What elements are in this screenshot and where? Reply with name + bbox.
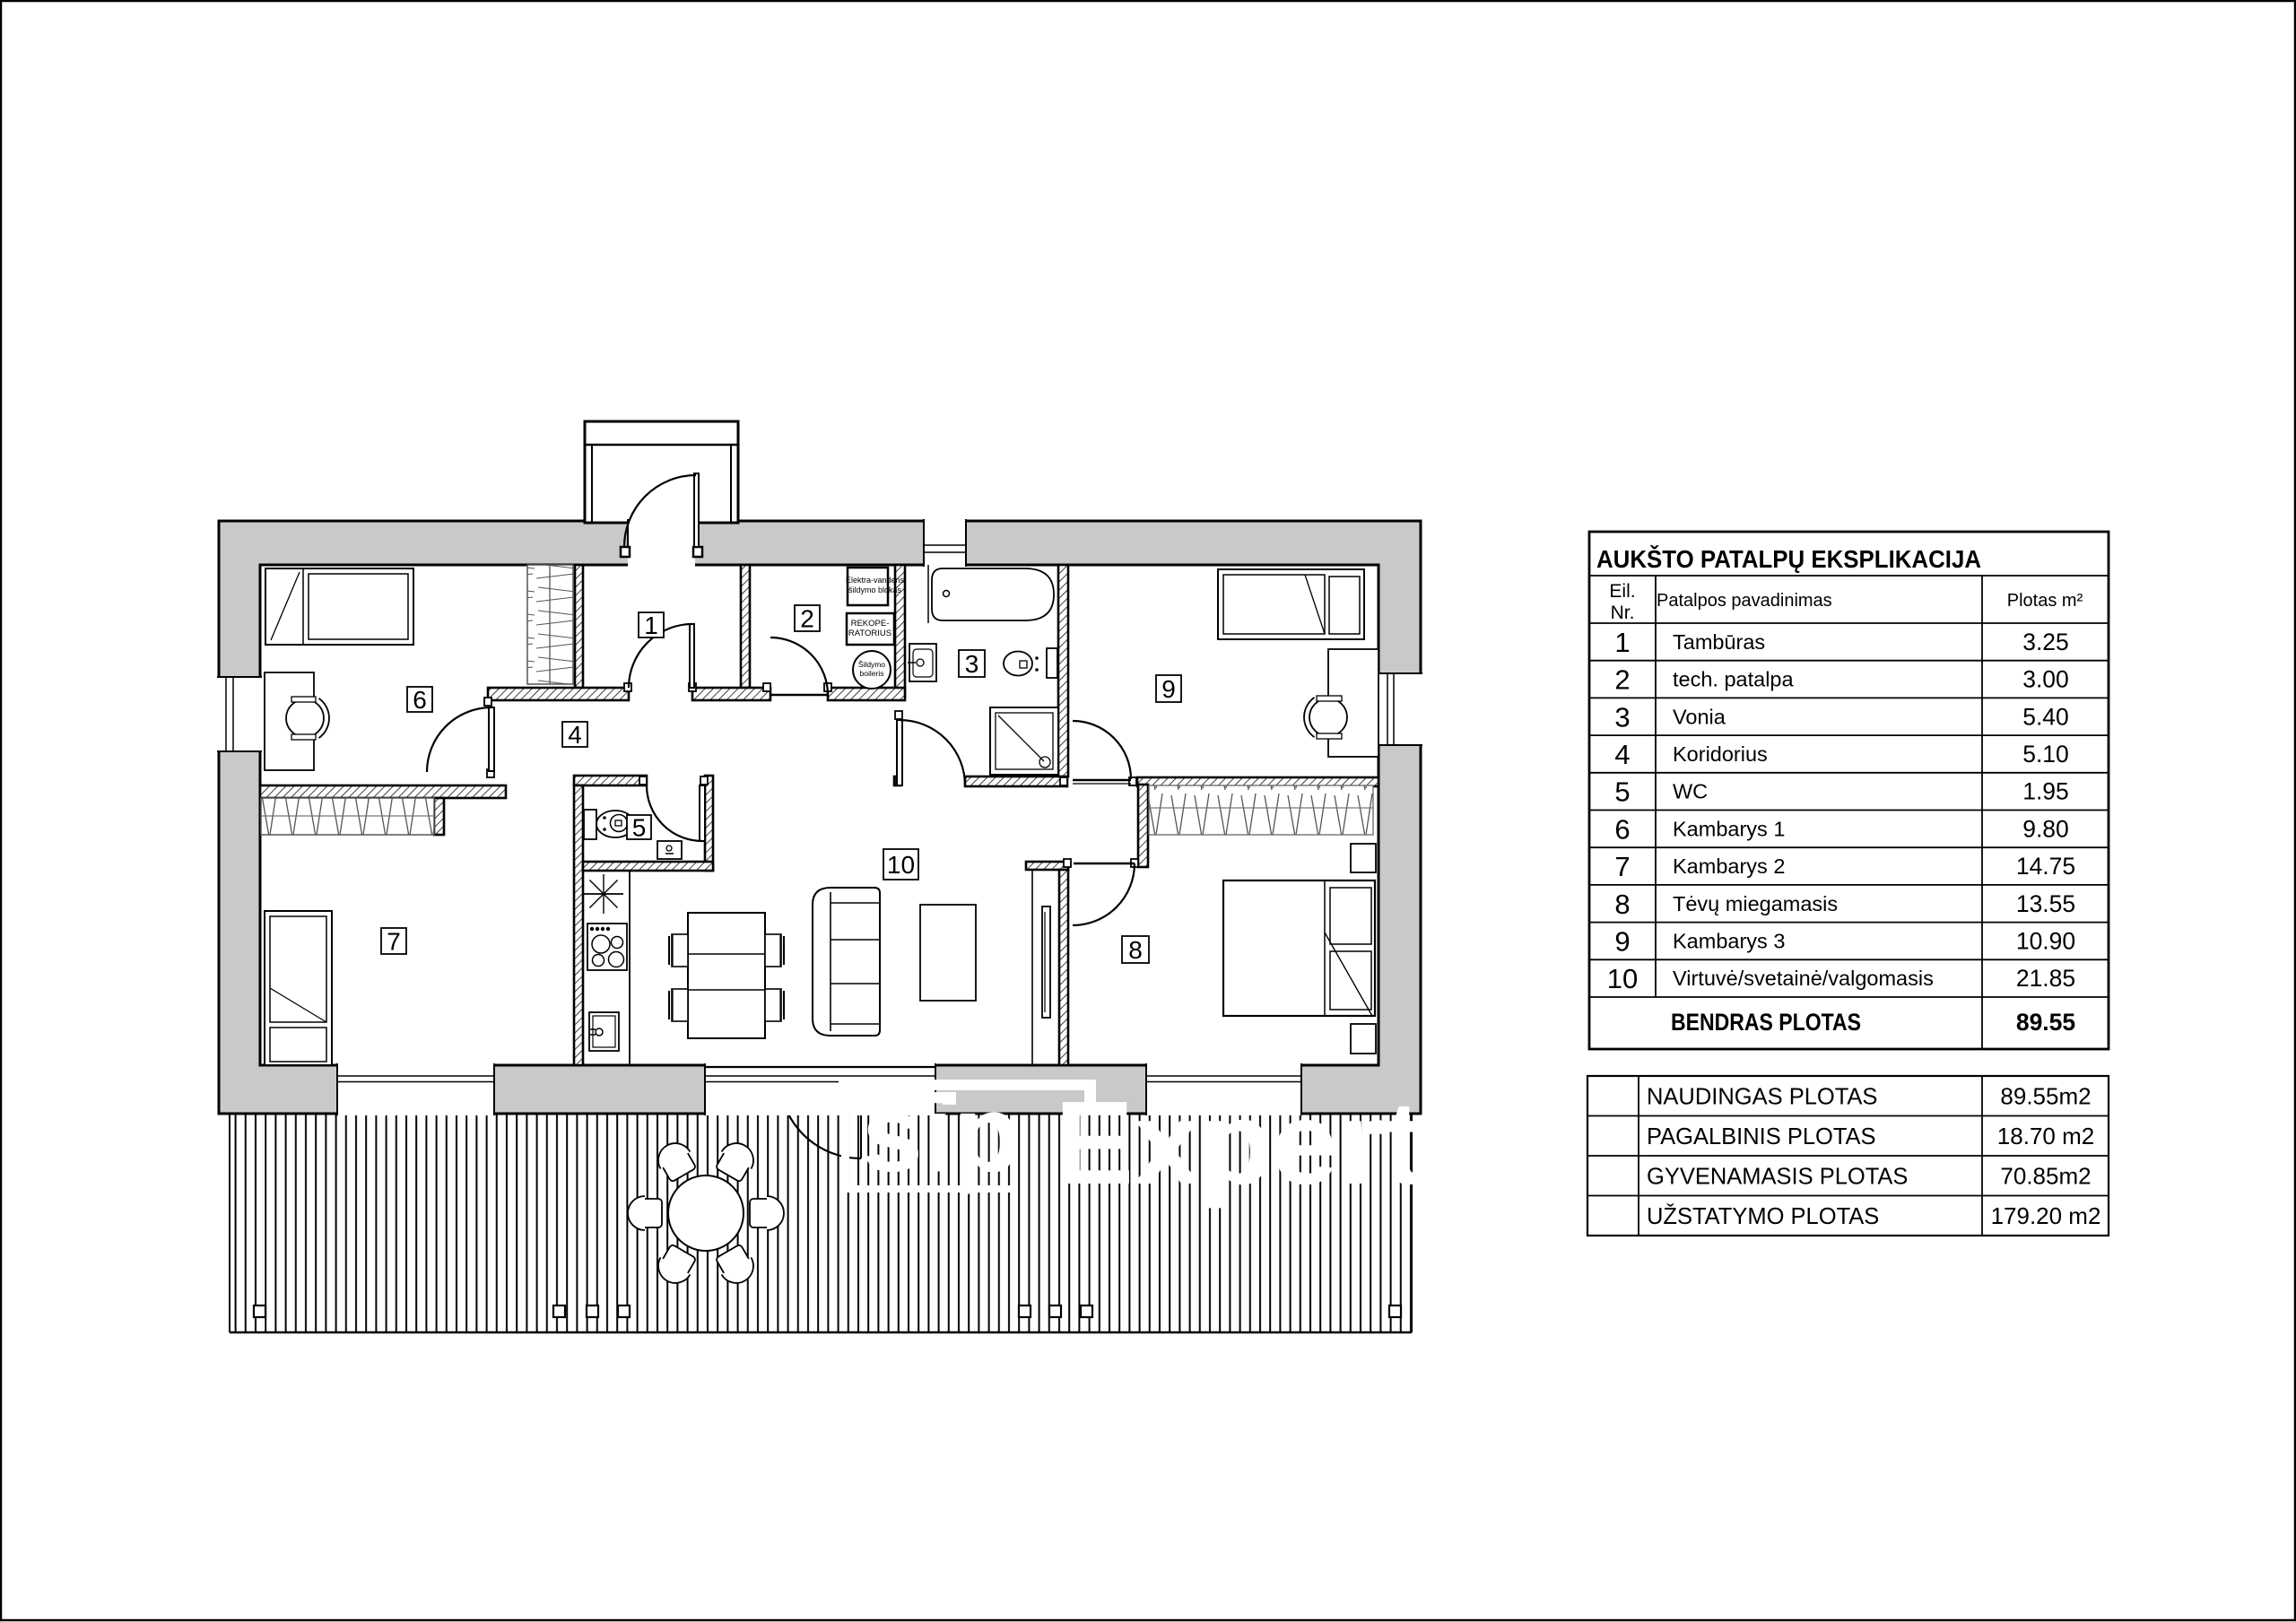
- svg-text:5.10: 5.10: [2022, 741, 2069, 768]
- svg-text:AUKŠTO PATALPŲ EKSPLIKACIJA: AUKŠTO PATALPŲ EKSPLIKACIJA: [1596, 544, 1981, 573]
- svg-text:4: 4: [568, 721, 582, 749]
- svg-text:BENDRAS PLOTAS: BENDRAS PLOTAS: [1671, 1009, 1861, 1036]
- svg-text:Koridorius: Koridorius: [1673, 742, 1768, 766]
- svg-text:9: 9: [1614, 925, 1630, 957]
- svg-text:Kambarys 2: Kambarys 2: [1673, 854, 1785, 878]
- svg-text:2: 2: [1614, 664, 1630, 696]
- svg-text:8: 8: [1128, 936, 1143, 964]
- svg-text:3.00: 3.00: [2022, 666, 2069, 693]
- svg-text:10: 10: [887, 851, 915, 879]
- svg-text:NAUDINGAS PLOTAS: NAUDINGAS PLOTAS: [1647, 1084, 1877, 1109]
- svg-text:UŽSTATYMO PLOTAS: UŽSTATYMO PLOTAS: [1647, 1203, 1879, 1229]
- svg-text:13.55: 13.55: [2016, 890, 2075, 917]
- svg-text:Patalpos pavadinimas: Patalpos pavadinimas: [1657, 591, 1832, 611]
- svg-text:6: 6: [1614, 813, 1630, 845]
- svg-text:8: 8: [1614, 889, 1630, 920]
- svg-text:Šildymo: Šildymo: [858, 660, 886, 669]
- svg-text:89.55: 89.55: [2016, 1009, 2075, 1036]
- svg-text:21.85: 21.85: [2016, 965, 2075, 992]
- svg-text:Kambarys 3: Kambarys 3: [1673, 929, 1785, 952]
- svg-text:9.80: 9.80: [2022, 815, 2069, 842]
- svg-text:REKOPE-: REKOPE-: [851, 619, 890, 629]
- svg-text:GYVENAMASIS PLOTAS: GYVENAMASIS PLOTAS: [1647, 1164, 1908, 1189]
- svg-text:tech. patalpa: tech. patalpa: [1673, 668, 1795, 691]
- svg-text:3: 3: [965, 650, 979, 678]
- svg-text:5: 5: [1614, 776, 1630, 808]
- svg-text:5.40: 5.40: [2022, 703, 2069, 730]
- svg-text:9: 9: [1161, 675, 1176, 703]
- svg-text:sip: sip: [862, 1072, 1020, 1194]
- svg-text:5: 5: [632, 814, 647, 842]
- svg-text:179.20 m2: 179.20 m2: [1991, 1202, 2101, 1229]
- svg-text:3: 3: [1614, 701, 1630, 733]
- svg-text:1: 1: [644, 612, 658, 639]
- svg-text:4: 4: [1614, 739, 1630, 770]
- svg-text:89.55m2: 89.55m2: [2000, 1082, 2091, 1109]
- svg-text:Expert: Expert: [1055, 1077, 1423, 1209]
- svg-text:10.90: 10.90: [2016, 927, 2075, 954]
- svg-text:RATORIUS: RATORIUS: [848, 629, 891, 638]
- svg-text:6: 6: [413, 686, 427, 714]
- svg-text:Eil.: Eil.: [1609, 581, 1635, 602]
- svg-text:PAGALBINIS PLOTAS: PAGALBINIS PLOTAS: [1647, 1124, 1876, 1149]
- svg-text:boileris: boileris: [860, 669, 884, 678]
- svg-text:Tėvų miegamasis: Tėvų miegamasis: [1673, 892, 1838, 915]
- svg-text:Virtuvė/svetainė/valgomasis: Virtuvė/svetainė/valgomasis: [1673, 967, 1934, 990]
- svg-text:2: 2: [800, 605, 814, 633]
- svg-text:Kambarys 1: Kambarys 1: [1673, 817, 1785, 840]
- svg-text:14.75: 14.75: [2016, 853, 2075, 880]
- svg-text:1.95: 1.95: [2022, 778, 2069, 805]
- svg-text:1: 1: [1614, 627, 1630, 658]
- svg-text:Nr.: Nr.: [1611, 603, 1635, 623]
- svg-text:WC: WC: [1673, 780, 1708, 803]
- svg-text:3.25: 3.25: [2022, 629, 2069, 655]
- svg-text:10: 10: [1607, 963, 1638, 994]
- svg-text:Tambūras: Tambūras: [1673, 630, 1765, 654]
- svg-text:18.70 m2: 18.70 m2: [1997, 1123, 2094, 1149]
- svg-text:7: 7: [1614, 851, 1630, 882]
- svg-text:šildymo blokas: šildymo blokas: [848, 585, 902, 594]
- svg-text:Vonia: Vonia: [1673, 705, 1726, 728]
- svg-text:70.85m2: 70.85m2: [2000, 1162, 2091, 1189]
- svg-text:7: 7: [387, 928, 401, 956]
- svg-text:Elektra-vandens: Elektra-vandens: [846, 576, 905, 585]
- svg-text:Plotas m²: Plotas m²: [2007, 591, 2083, 611]
